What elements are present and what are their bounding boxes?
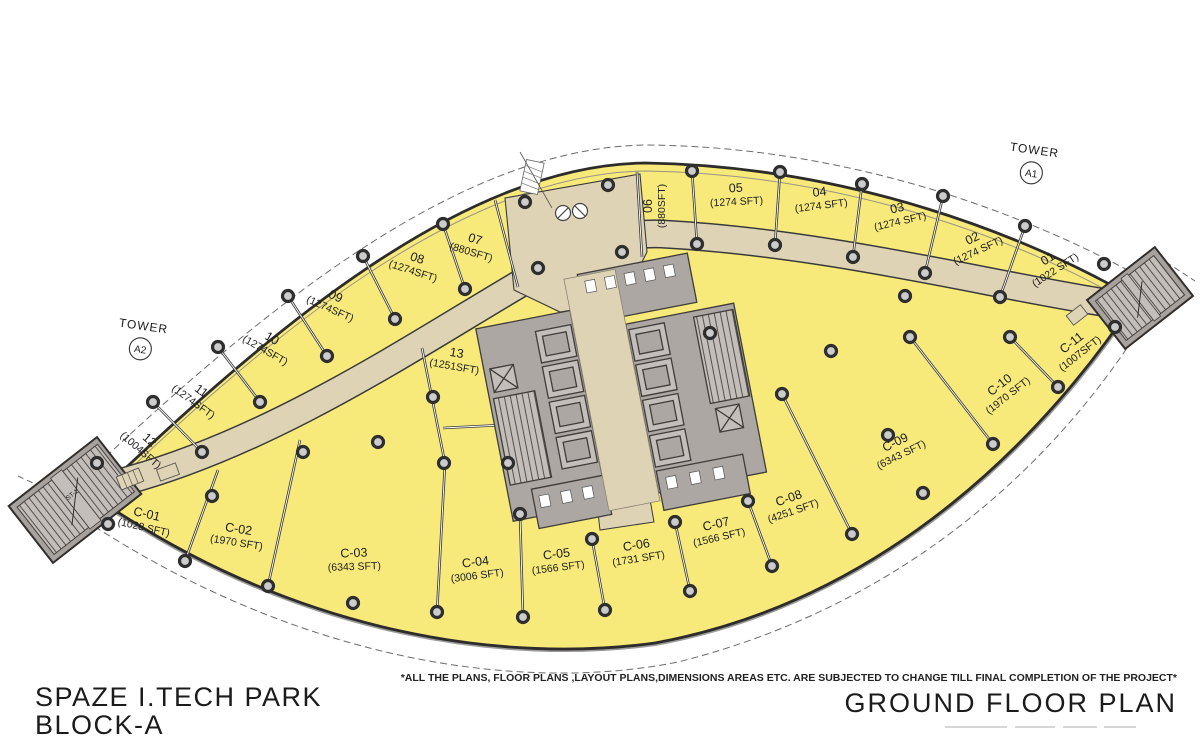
column-marker bbox=[743, 496, 754, 507]
column-marker bbox=[103, 519, 114, 530]
svg-text:05: 05 bbox=[728, 181, 743, 196]
column-marker bbox=[263, 581, 274, 592]
column-marker bbox=[918, 488, 929, 499]
column-marker bbox=[348, 598, 359, 609]
column-marker bbox=[587, 534, 598, 545]
column-marker bbox=[503, 458, 514, 469]
svg-text:(6343 SFT): (6343 SFT) bbox=[328, 560, 381, 574]
column-marker bbox=[938, 191, 949, 202]
block-title: BLOCK-A bbox=[35, 710, 164, 740]
column-marker bbox=[687, 166, 698, 177]
column-marker bbox=[826, 346, 837, 357]
column-marker bbox=[692, 239, 703, 250]
svg-text:A2: A2 bbox=[133, 344, 147, 357]
tower-marker-a1: TOWER A1 bbox=[1005, 140, 1060, 187]
column-marker bbox=[92, 458, 103, 469]
column-marker bbox=[283, 291, 294, 302]
column-marker bbox=[358, 251, 369, 262]
column-marker bbox=[197, 447, 208, 458]
column-marker bbox=[857, 179, 868, 190]
column-marker bbox=[1110, 322, 1121, 333]
disclaimer-note: *ALL THE PLANS, FLOOR PLANS ,LAYOUT PLAN… bbox=[401, 672, 1178, 684]
stair-block-west: ST-1 bbox=[9, 437, 142, 563]
column-marker bbox=[207, 491, 218, 502]
column-marker bbox=[432, 607, 443, 618]
column-marker bbox=[705, 328, 716, 339]
svg-text:A1: A1 bbox=[1024, 168, 1038, 181]
svg-text:C-03: C-03 bbox=[340, 546, 368, 561]
svg-text:TOWER: TOWER bbox=[118, 316, 169, 337]
column-marker bbox=[777, 389, 788, 400]
plan-title: GROUND FLOOR PLAN bbox=[844, 688, 1177, 718]
column-marker bbox=[298, 447, 309, 458]
column-marker bbox=[518, 612, 529, 623]
column-marker bbox=[905, 332, 916, 343]
column-marker bbox=[520, 197, 531, 208]
column-marker bbox=[988, 439, 999, 450]
column-marker bbox=[390, 314, 401, 325]
column-marker bbox=[920, 268, 931, 279]
svg-text:04: 04 bbox=[812, 184, 828, 200]
svg-text:13: 13 bbox=[449, 345, 465, 361]
tower-marker-a2: TOWER A2 bbox=[114, 316, 169, 363]
column-marker bbox=[428, 392, 439, 403]
column-marker bbox=[600, 605, 611, 616]
column-marker bbox=[460, 284, 471, 295]
column-marker bbox=[1099, 259, 1110, 270]
svg-text:(880SFT): (880SFT) bbox=[656, 184, 668, 228]
column-marker bbox=[438, 219, 449, 230]
floor-plan-page: ST-1 01 (1022 SFT) 02 (1274 SFT) bbox=[0, 0, 1200, 756]
column-marker bbox=[255, 397, 266, 408]
project-title: SPAZE I.TECH PARK bbox=[35, 682, 322, 712]
column-marker bbox=[148, 397, 159, 408]
column-marker bbox=[847, 529, 858, 540]
column-marker bbox=[995, 292, 1006, 303]
column-marker bbox=[670, 517, 681, 528]
column-marker bbox=[1005, 332, 1016, 343]
column-marker bbox=[775, 167, 786, 178]
svg-text:06: 06 bbox=[641, 199, 655, 213]
floor-plan-canvas: ST-1 01 (1022 SFT) 02 (1274 SFT) bbox=[0, 0, 1200, 756]
column-marker bbox=[617, 247, 628, 258]
column-marker bbox=[515, 509, 526, 520]
column-marker bbox=[322, 351, 333, 362]
column-marker bbox=[1053, 382, 1064, 393]
column-marker bbox=[180, 556, 191, 567]
column-marker bbox=[373, 437, 384, 448]
column-marker bbox=[685, 586, 696, 597]
column-marker bbox=[439, 458, 450, 469]
column-marker bbox=[1020, 221, 1031, 232]
svg-text:TOWER: TOWER bbox=[1009, 140, 1060, 161]
column-marker bbox=[213, 342, 224, 353]
column-marker bbox=[533, 263, 544, 274]
column-marker bbox=[848, 252, 859, 263]
column-marker bbox=[900, 291, 911, 302]
faint-subcaption bbox=[945, 726, 1136, 728]
column-marker bbox=[767, 561, 778, 572]
column-marker bbox=[770, 240, 781, 251]
column-marker bbox=[603, 180, 614, 191]
